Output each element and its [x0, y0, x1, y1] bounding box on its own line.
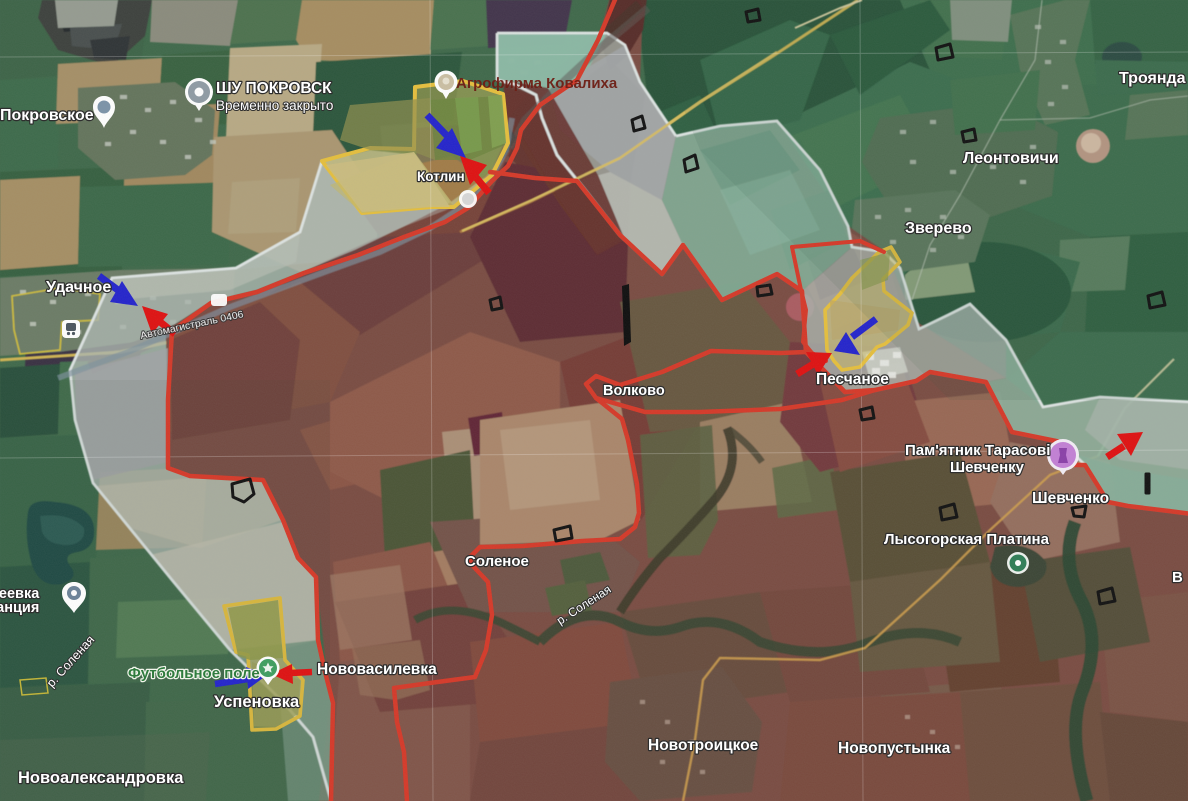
- svg-text:Агрофирма Ковалиха: Агрофирма Ковалиха: [456, 75, 618, 92]
- svg-text:Троянда: Троянда: [1119, 70, 1186, 87]
- svg-text:Временно закрыто: Временно закрыто: [216, 98, 333, 113]
- svg-text:станция: станция: [0, 600, 39, 616]
- svg-text:ШУ ПОКРОВСК: ШУ ПОКРОВСК: [216, 80, 332, 97]
- svg-text:Удачное: Удачное: [46, 279, 111, 296]
- svg-text:Песчаное: Песчаное: [816, 371, 889, 388]
- svg-text:Зверево: Зверево: [905, 220, 972, 237]
- svg-text:Шевченко: Шевченко: [1032, 490, 1109, 507]
- svg-text:Успеновка: Успеновка: [214, 693, 300, 711]
- svg-text:В: В: [1172, 569, 1183, 586]
- svg-text:Леонтовичи: Леонтовичи: [963, 150, 1059, 167]
- svg-text:Волково: Волково: [603, 383, 665, 399]
- svg-text:Новопустынка: Новопустынка: [838, 740, 951, 757]
- svg-text:Покровское: Покровское: [0, 107, 94, 124]
- svg-text:Нововасилевка: Нововасилевка: [317, 661, 437, 678]
- svg-text:Новоалександровка: Новоалександровка: [18, 769, 184, 787]
- svg-text:Пам'ятник Тарасові: Пам'ятник Тарасові: [905, 442, 1050, 459]
- svg-text:Котлин: Котлин: [417, 169, 465, 184]
- svg-text:Шевченку: Шевченку: [950, 459, 1025, 476]
- svg-text:Футбольное поле: Футбольное поле: [128, 665, 260, 682]
- svg-text:Новотроицкое: Новотроицкое: [648, 737, 759, 754]
- svg-text:Соленое: Соленое: [465, 553, 529, 570]
- svg-text:Лысогорская Платина: Лысогорская Платина: [884, 531, 1050, 548]
